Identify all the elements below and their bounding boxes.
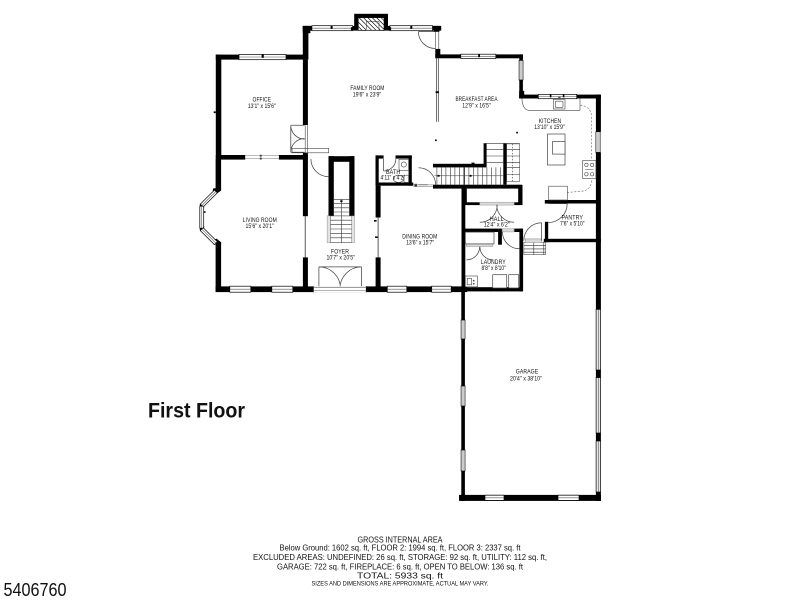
svg-text:GARAGE: GARAGE	[516, 369, 539, 376]
svg-text:Below Ground: 1602 sq. ft, FLO: Below Ground: 1602 sq. ft, FLOOR 2: 1994…	[280, 544, 522, 553]
svg-text:15'6" x 20'1": 15'6" x 20'1"	[246, 223, 275, 230]
svg-text:13'10" x 15'9": 13'10" x 15'9"	[534, 124, 565, 131]
svg-text:5406760: 5406760	[4, 580, 67, 600]
svg-text:10'7" x 20'5": 10'7" x 20'5"	[326, 255, 355, 262]
svg-text:TOTAL: 5933 sq. ft: TOTAL: 5933 sq. ft	[357, 572, 444, 581]
svg-text:13'6" x 15'7": 13'6" x 15'7"	[406, 239, 434, 246]
svg-text:8'8" x 8'10": 8'8" x 8'10"	[481, 265, 506, 272]
svg-text:20'4" x 38'10": 20'4" x 38'10"	[510, 376, 542, 383]
svg-text:First Floor: First Floor	[148, 399, 246, 423]
svg-text:7'6" x 5'10": 7'6" x 5'10"	[560, 221, 585, 228]
svg-text:13'1" x 15'6": 13'1" x 15'6"	[248, 103, 276, 110]
svg-text:GARAGE: 722 sq. ft, FIREPLACE:: GARAGE: 722 sq. ft, FIREPLACE: 6 sq. ft,…	[277, 562, 524, 571]
svg-text:EXCLUDED AREAS: UNDEFINED: 26: EXCLUDED AREAS: UNDEFINED: 26 sq. ft, ST…	[253, 553, 547, 562]
svg-text:SIZES AND DIMENSIONS ARE APPRO: SIZES AND DIMENSIONS ARE APPROXIMATE, AC…	[312, 580, 489, 587]
svg-text:4'11" x 4'2": 4'11" x 4'2"	[381, 175, 406, 182]
svg-text:19'6" x 23'9": 19'6" x 23'9"	[353, 92, 382, 99]
svg-text:12'4" x 6'2": 12'4" x 6'2"	[484, 222, 510, 229]
svg-text:12'9" x 16'5": 12'9" x 16'5"	[462, 103, 491, 110]
